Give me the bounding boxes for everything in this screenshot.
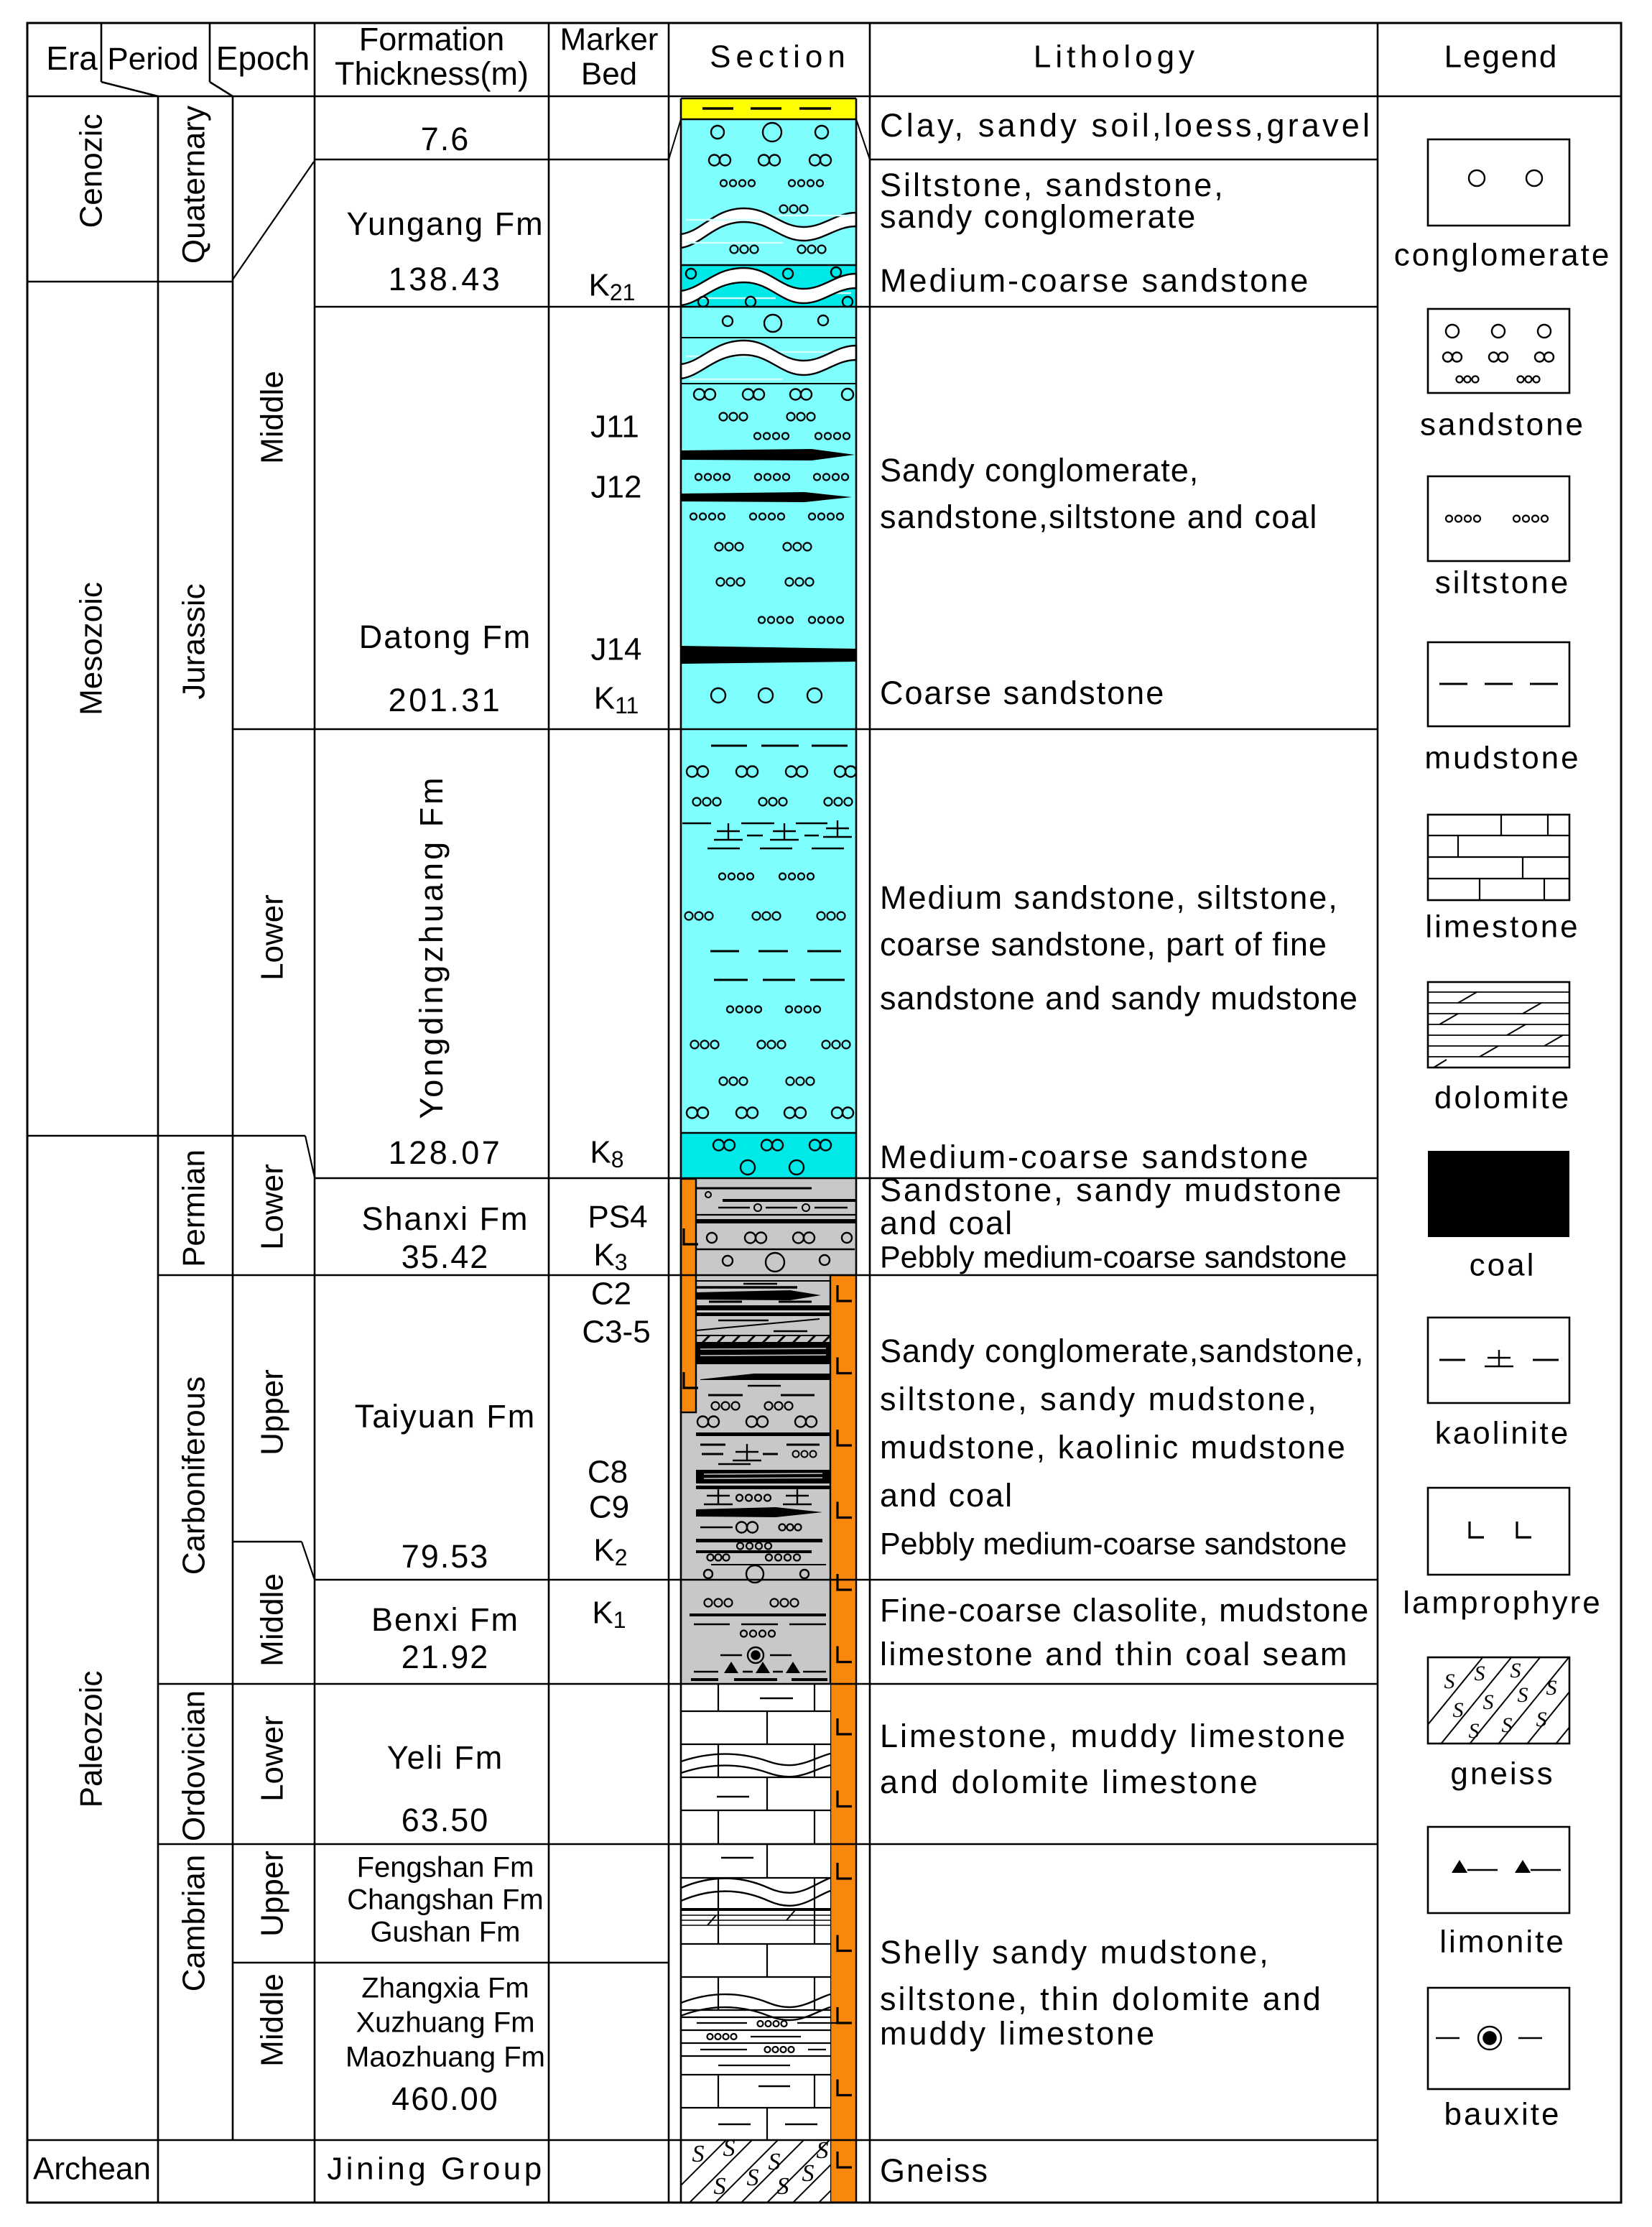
svg-text:S: S bbox=[723, 2135, 735, 2162]
svg-text:sandstone: sandstone bbox=[1420, 407, 1585, 443]
svg-text:Marker: Marker bbox=[560, 22, 659, 57]
svg-text:mudstone: mudstone bbox=[1424, 741, 1580, 776]
svg-text:C9: C9 bbox=[589, 1490, 629, 1525]
svg-text:S: S bbox=[714, 2173, 726, 2200]
svg-text:Pebbly medium-coarse sandstone: Pebbly medium-coarse sandstone bbox=[880, 1240, 1347, 1274]
svg-text:Ordovician: Ordovician bbox=[177, 1690, 212, 1841]
svg-text:Sandstone, sandy mudstone: Sandstone, sandy mudstone bbox=[880, 1172, 1343, 1208]
svg-text:limestone: limestone bbox=[1425, 909, 1579, 945]
svg-text:Sandy conglomerate,: Sandy conglomerate, bbox=[880, 452, 1199, 489]
svg-text:21.92: 21.92 bbox=[402, 1639, 490, 1675]
svg-text:Lower: Lower bbox=[255, 894, 290, 981]
svg-text:S: S bbox=[1475, 1662, 1485, 1685]
svg-text:siltstone, thin dolomite and: siltstone, thin dolomite and bbox=[880, 1981, 1323, 2017]
svg-text:S: S bbox=[1469, 1719, 1480, 1743]
svg-text:Mesozoic: Mesozoic bbox=[74, 582, 109, 716]
svg-text:PS4: PS4 bbox=[588, 1200, 647, 1235]
svg-text:J11: J11 bbox=[590, 409, 639, 445]
svg-text:Archean: Archean bbox=[33, 2152, 151, 2187]
svg-text:Cenozic: Cenozic bbox=[74, 114, 109, 228]
svg-text:C3-5: C3-5 bbox=[582, 1315, 650, 1350]
svg-text:Fine-coarse clasolite, mudston: Fine-coarse clasolite, mudstone bbox=[880, 1592, 1370, 1629]
svg-text:Zhangxia Fm: Zhangxia Fm bbox=[361, 1973, 529, 2004]
svg-text:sandstone and sandy mudstone: sandstone and sandy mudstone bbox=[880, 980, 1358, 1017]
svg-text:S: S bbox=[1518, 1683, 1528, 1707]
svg-text:Paleozoic: Paleozoic bbox=[74, 1671, 109, 1808]
svg-text:Epoch: Epoch bbox=[216, 40, 310, 77]
svg-text:dolomite: dolomite bbox=[1434, 1080, 1571, 1116]
svg-text:Cambrian: Cambrian bbox=[177, 1855, 212, 1992]
svg-text:Xuzhuang Fm: Xuzhuang Fm bbox=[356, 2007, 534, 2039]
svg-text:kaolinite: kaolinite bbox=[1435, 1416, 1570, 1451]
svg-text:S: S bbox=[802, 2160, 815, 2187]
svg-text:Legend: Legend bbox=[1444, 40, 1559, 75]
svg-text:Section: Section bbox=[710, 40, 850, 75]
svg-text:Formation: Formation bbox=[359, 21, 505, 57]
svg-text:sandstone,siltstone and coal: sandstone,siltstone and coal bbox=[880, 499, 1318, 535]
svg-text:Upper: Upper bbox=[255, 1369, 290, 1455]
svg-text:201.31: 201.31 bbox=[389, 682, 503, 718]
svg-text:Jurassic: Jurassic bbox=[177, 583, 212, 699]
svg-text:Period: Period bbox=[107, 42, 198, 77]
svg-text:and coal: and coal bbox=[880, 1205, 1013, 1241]
svg-text:Maozhuang Fm: Maozhuang Fm bbox=[345, 2042, 545, 2073]
svg-text:Shelly sandy mudstone,: Shelly sandy mudstone, bbox=[880, 1934, 1271, 1971]
svg-text:S: S bbox=[1546, 1676, 1557, 1700]
svg-text:Yeli Fm: Yeli Fm bbox=[387, 1739, 504, 1776]
svg-text:Quaternary: Quaternary bbox=[177, 106, 212, 264]
svg-text:S: S bbox=[747, 2165, 759, 2191]
svg-text:Bed: Bed bbox=[581, 57, 637, 92]
svg-text:Upper: Upper bbox=[255, 1851, 290, 1937]
svg-text:Gneiss: Gneiss bbox=[880, 2152, 989, 2189]
svg-text:S: S bbox=[1483, 1690, 1494, 1714]
svg-text:Thickness(m): Thickness(m) bbox=[335, 55, 529, 92]
svg-text:Carboniferous: Carboniferous bbox=[177, 1376, 212, 1575]
svg-text:Lower: Lower bbox=[255, 1716, 290, 1802]
svg-text:35.42: 35.42 bbox=[402, 1238, 490, 1275]
svg-text:S: S bbox=[692, 2141, 705, 2167]
svg-text:Fengshan Fm: Fengshan Fm bbox=[357, 1852, 534, 1884]
svg-text:siltstone, sandy mudstone,: siltstone, sandy mudstone, bbox=[880, 1381, 1319, 1417]
svg-text:Middle: Middle bbox=[255, 371, 290, 464]
svg-text:Medium-coarse sandstone: Medium-coarse sandstone bbox=[880, 1139, 1310, 1175]
svg-text:J14: J14 bbox=[591, 632, 642, 667]
svg-text:S: S bbox=[1444, 1670, 1455, 1693]
svg-text:128.07: 128.07 bbox=[389, 1134, 503, 1171]
svg-text:S: S bbox=[1511, 1659, 1521, 1682]
svg-text:Middle: Middle bbox=[255, 1573, 290, 1667]
svg-text:S: S bbox=[1453, 1698, 1464, 1722]
svg-text:Changshan Fm: Changshan Fm bbox=[347, 1884, 543, 1916]
svg-text:conglomerate: conglomerate bbox=[1394, 238, 1612, 273]
svg-text:Sandy conglomerate,sandstone,: Sandy conglomerate,sandstone, bbox=[880, 1333, 1364, 1369]
svg-text:J12: J12 bbox=[591, 470, 642, 505]
svg-text:S: S bbox=[1536, 1708, 1547, 1731]
svg-text:Datong Fm: Datong Fm bbox=[359, 619, 532, 655]
svg-text:Gushan Fm: Gushan Fm bbox=[371, 1917, 521, 1948]
svg-text:mudstone, kaolinic mudstone: mudstone, kaolinic mudstone bbox=[880, 1429, 1347, 1466]
svg-text:Clay, sandy soil,loess,gravel: Clay, sandy soil,loess,gravel bbox=[880, 107, 1373, 144]
svg-text:gneiss: gneiss bbox=[1450, 1756, 1554, 1792]
svg-text:siltstone: siltstone bbox=[1435, 565, 1570, 601]
svg-text:muddy limestone: muddy limestone bbox=[880, 2015, 1156, 2052]
svg-text:Pebbly medium-coarse sandstone: Pebbly medium-coarse sandstone bbox=[880, 1527, 1347, 1561]
svg-text:Medium sandstone, siltstone,: Medium sandstone, siltstone, bbox=[880, 879, 1339, 916]
svg-text:lamprophyre: lamprophyre bbox=[1403, 1585, 1602, 1621]
svg-text:Era: Era bbox=[46, 40, 98, 77]
svg-text:7.6: 7.6 bbox=[421, 121, 470, 157]
svg-text:460.00: 460.00 bbox=[391, 2080, 499, 2117]
svg-text:Benxi Fm: Benxi Fm bbox=[371, 1601, 519, 1638]
svg-text:bauxite: bauxite bbox=[1444, 2097, 1561, 2132]
svg-text:Lower: Lower bbox=[255, 1164, 290, 1250]
svg-text:Middle: Middle bbox=[255, 1973, 290, 2067]
svg-text:limestone and thin coal seam: limestone and thin coal seam bbox=[880, 1636, 1349, 1672]
svg-text:Permian: Permian bbox=[177, 1149, 212, 1267]
svg-text:C2: C2 bbox=[591, 1277, 631, 1312]
svg-text:Shanxi Fm: Shanxi Fm bbox=[361, 1200, 529, 1237]
svg-text:79.53: 79.53 bbox=[402, 1538, 490, 1575]
svg-text:Limestone, muddy limestone: Limestone, muddy limestone bbox=[880, 1718, 1347, 1754]
svg-text:Taiyuan Fm: Taiyuan Fm bbox=[355, 1398, 537, 1435]
svg-text:C8: C8 bbox=[588, 1455, 628, 1490]
svg-text:Medium-coarse sandstone: Medium-coarse sandstone bbox=[880, 262, 1310, 299]
svg-text:S: S bbox=[817, 2137, 829, 2164]
svg-text:and coal: and coal bbox=[880, 1477, 1013, 1514]
svg-text:coarse sandstone, part of fine: coarse sandstone, part of fine bbox=[880, 926, 1327, 963]
svg-text:limonite: limonite bbox=[1439, 1925, 1566, 1960]
svg-text:S: S bbox=[1502, 1713, 1513, 1737]
svg-text:Jining Group: Jining Group bbox=[327, 2152, 544, 2187]
svg-text:sandy conglomerate: sandy conglomerate bbox=[880, 198, 1197, 235]
svg-text:S: S bbox=[777, 2173, 789, 2200]
svg-text:Yongdingzhuang Fm: Yongdingzhuang Fm bbox=[413, 774, 450, 1119]
svg-text:138.43: 138.43 bbox=[389, 261, 503, 297]
svg-text:coal: coal bbox=[1470, 1248, 1536, 1283]
svg-text:Coarse sandstone: Coarse sandstone bbox=[880, 675, 1165, 711]
svg-text:S: S bbox=[769, 2149, 781, 2175]
svg-text:Lithology: Lithology bbox=[1034, 40, 1199, 75]
svg-text:63.50: 63.50 bbox=[402, 1802, 490, 1838]
svg-text:Yungang Fm: Yungang Fm bbox=[346, 205, 544, 242]
svg-text:and dolomite limestone: and dolomite limestone bbox=[880, 1764, 1260, 1800]
